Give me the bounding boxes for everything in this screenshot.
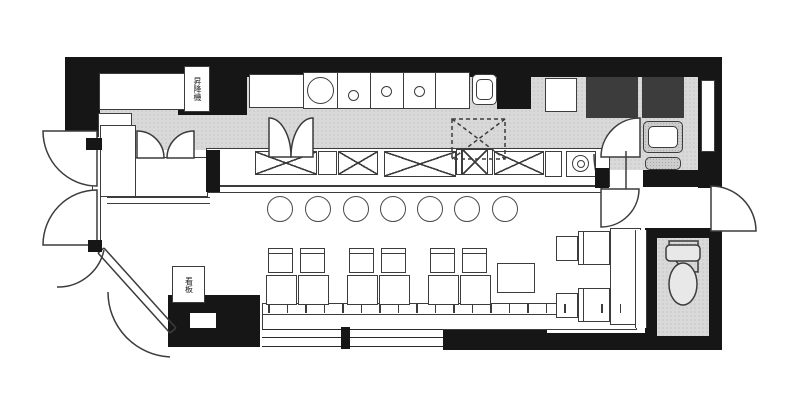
dining-chair [430, 248, 455, 273]
bench-seat-divider [620, 304, 622, 313]
nook-chair-backrest [556, 236, 578, 261]
wall-pier-counter-left [206, 150, 220, 192]
nook-bench [635, 230, 647, 328]
wall-notch [190, 313, 216, 328]
bench-seat-divider [527, 304, 529, 313]
wall-segment-top-left-corner [65, 57, 100, 140]
dining-table [428, 275, 459, 305]
counter-divider [487, 149, 493, 175]
stockpot-circle [307, 77, 334, 104]
vanity-basin [648, 126, 678, 148]
bench-seat-divider [342, 304, 344, 313]
counter-stool [417, 196, 443, 222]
wall-post-entry-upper [86, 138, 102, 150]
wall-niche [701, 80, 715, 152]
counter-stool [380, 196, 406, 222]
dining-table [347, 275, 378, 305]
under-counter-equipment-xbox [462, 149, 488, 175]
hand-sink-drain [577, 160, 585, 168]
diagonal-door-swing-upper [57, 250, 104, 287]
nook-chair-backrest [556, 293, 578, 318]
counter-stool [492, 196, 518, 222]
dining-chair [349, 248, 374, 273]
bench-seat-divider [287, 304, 289, 313]
counter-stool [343, 196, 369, 222]
burner-circle [414, 86, 425, 97]
floor-plan-canvas: 昇降機 看板 [0, 0, 787, 408]
bench-seat-divider [416, 304, 418, 313]
entry-counter-vertical [100, 125, 136, 197]
counter-stool [454, 196, 480, 222]
bench-seat-divider [398, 304, 400, 313]
bench-seat-divider [435, 304, 437, 313]
wall-segment-bottom-right [545, 333, 647, 350]
bench-seat-divider [361, 304, 363, 313]
wall-segment-bottom-center [443, 327, 547, 350]
dining-chair [300, 248, 325, 273]
side-service-table [497, 263, 535, 293]
entry-counter-front-edge [107, 197, 210, 204]
vanity-shelf [645, 157, 681, 170]
dumbwaiter-shaft-label: 昇降機 [184, 66, 210, 112]
under-counter-equipment-xbox [384, 151, 456, 177]
dining-chair [268, 248, 293, 273]
worktable-blank-right [435, 72, 470, 109]
entry-counter-horizontal [135, 157, 208, 197]
counter-front-edge [208, 186, 610, 193]
bench-seat-divider [564, 304, 566, 313]
exit-door-swing [711, 186, 756, 231]
bench-seat-divider [472, 304, 474, 313]
counter-divider [456, 149, 462, 175]
burner-circle [381, 86, 392, 97]
under-counter-equipment-xbox [338, 151, 378, 175]
storefront-wall [92, 137, 101, 245]
toilet-room-floor [657, 238, 709, 336]
entrance-sign-stand: 看板 [172, 266, 205, 303]
counter-divider [318, 151, 337, 175]
bench-seat-divider [453, 304, 455, 313]
storage-unit-top-left [99, 73, 185, 110]
dining-table [298, 275, 329, 305]
worktable-blank-left [249, 74, 305, 108]
window-mullion [341, 327, 350, 349]
dining-table [460, 275, 491, 305]
bench-seat-divider [546, 304, 548, 313]
burner-circle [348, 90, 359, 101]
window-band [262, 329, 443, 347]
nook-chair [578, 231, 610, 265]
dining-table [266, 275, 297, 305]
corridor-door-swing [601, 189, 639, 227]
washroom-counter [545, 78, 577, 112]
diagonal-storefront [98, 248, 176, 333]
wall-pier-corridor [595, 168, 609, 188]
bench-seat-divider [268, 304, 270, 313]
bench-seat-divider [583, 304, 585, 313]
bench-seat-divider [324, 304, 326, 313]
under-counter-equipment-xbox [255, 151, 317, 175]
bench-seat-divider [305, 304, 307, 313]
wall-post-entry-lower [88, 240, 102, 252]
dining-chair [381, 248, 406, 273]
bench-seat-divider [379, 304, 381, 313]
bench-seat-divider [509, 304, 511, 313]
storage-unit-xbox [586, 77, 638, 118]
entrance-door-lower [43, 190, 97, 245]
dining-table [379, 275, 410, 305]
storage-unit-xbox [642, 77, 684, 118]
counter-stool [305, 196, 331, 222]
under-counter-equipment-xbox [494, 151, 544, 175]
wall-protrusion-mid [497, 57, 531, 109]
bench-seat-divider [490, 304, 492, 313]
counter-stool [267, 196, 293, 222]
wall-washroom-south [643, 170, 698, 187]
counter-divider [545, 151, 562, 177]
bench-seat-divider [601, 304, 603, 313]
dining-chair [462, 248, 487, 273]
kitchen-sink-basin [476, 79, 493, 100]
diagonal-door-swing-lower [108, 292, 170, 357]
